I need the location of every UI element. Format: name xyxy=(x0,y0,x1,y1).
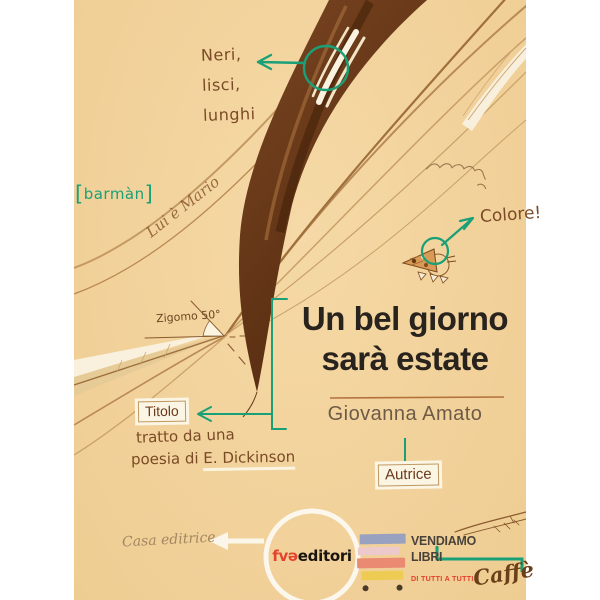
book-title: Un bel giorno sarà estate xyxy=(260,299,550,379)
book-cover: Neri, lisci, lunghi [barmàn] Lui è Mario… xyxy=(74,0,526,600)
title-source-prefix: poesia di xyxy=(131,449,199,468)
author-name: Giovanna Amato xyxy=(260,403,550,426)
colore-annotation: Colore! xyxy=(479,203,542,227)
casa-editrice-arrow xyxy=(209,532,264,550)
publisher-logo: fvəeditori xyxy=(266,547,358,565)
title-source-line1: tratto da una xyxy=(136,425,235,446)
book-cart-icon xyxy=(357,534,407,592)
publisher-logo-editori: editori xyxy=(298,547,352,565)
hair-white-lock-topright xyxy=(462,34,526,131)
vendiamo-line1: VENDIAMO xyxy=(411,533,516,549)
autrice-label-box: Autrice xyxy=(378,463,439,486)
barman-label: barmàn xyxy=(84,185,145,203)
title-source-line2: poesia di E. Dickinson xyxy=(131,448,295,469)
publisher-logo-fve: fvə xyxy=(272,547,298,565)
book-title-line1: Un bel giorno xyxy=(260,299,550,339)
twig-sketch xyxy=(455,512,526,535)
dickinson-name: E. Dickinson xyxy=(203,448,295,472)
book-cover-page: Neri, lisci, lunghi [barmàn] Lui è Mario… xyxy=(0,0,600,600)
hair-annotation: Neri, lisci, lunghi xyxy=(200,39,256,131)
hair-annotation-line: lunghi xyxy=(203,99,256,131)
right-bracket: ] xyxy=(145,182,154,206)
barman-annotation: [barmàn] xyxy=(75,182,153,206)
scribble-sketch xyxy=(425,159,489,189)
author-separator-line xyxy=(330,397,504,398)
hair-annotation-line: lisci, xyxy=(201,69,254,101)
left-bracket: [ xyxy=(75,182,84,206)
book-title-line2: sarà estate xyxy=(260,339,550,379)
titolo-label-box: Titolo xyxy=(138,401,186,423)
hair-annotation-line: Neri, xyxy=(200,39,253,71)
